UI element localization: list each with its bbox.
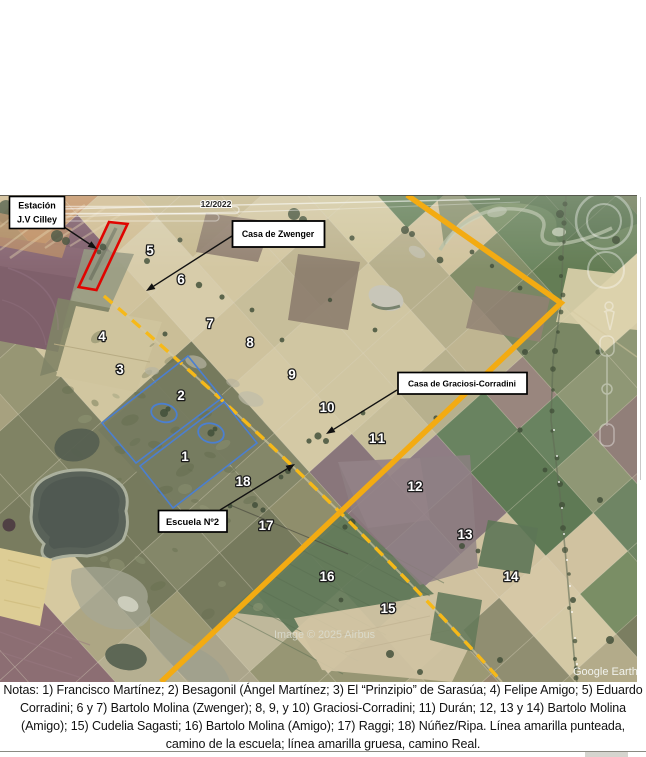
svg-text:15: 15	[380, 601, 396, 616]
svg-text:7: 7	[206, 316, 214, 331]
svg-text:9: 9	[288, 367, 296, 382]
svg-text:Image © 2025 Airbus: Image © 2025 Airbus	[274, 629, 376, 641]
svg-text:1: 1	[181, 449, 189, 464]
svg-text:Casa de Zwenger: Casa de Zwenger	[242, 229, 315, 239]
svg-text:17: 17	[258, 518, 273, 533]
svg-text:6: 6	[177, 272, 185, 287]
svg-text:8: 8	[246, 335, 254, 350]
svg-text:Escuela Nº2: Escuela Nº2	[166, 517, 219, 527]
svg-text:14: 14	[503, 569, 519, 584]
svg-text:Casa de Graciosi-Corradini: Casa de Graciosi-Corradini	[408, 379, 516, 389]
svg-text:11: 11	[369, 431, 387, 446]
svg-text:12: 12	[407, 479, 422, 494]
svg-text:13: 13	[457, 527, 473, 542]
svg-text:18: 18	[235, 474, 251, 489]
svg-text:5: 5	[146, 243, 154, 258]
svg-text:2: 2	[177, 388, 185, 403]
svg-text:12/2022: 12/2022	[201, 199, 232, 209]
svg-text:J.V Cilley: J.V Cilley	[17, 215, 57, 225]
svg-text:Google Earth: Google Earth	[573, 666, 637, 678]
svg-text:4: 4	[98, 329, 106, 344]
svg-text:Estación: Estación	[18, 201, 56, 211]
svg-text:10: 10	[319, 400, 334, 415]
svg-text:3: 3	[116, 362, 124, 377]
svg-text:16: 16	[319, 569, 335, 584]
